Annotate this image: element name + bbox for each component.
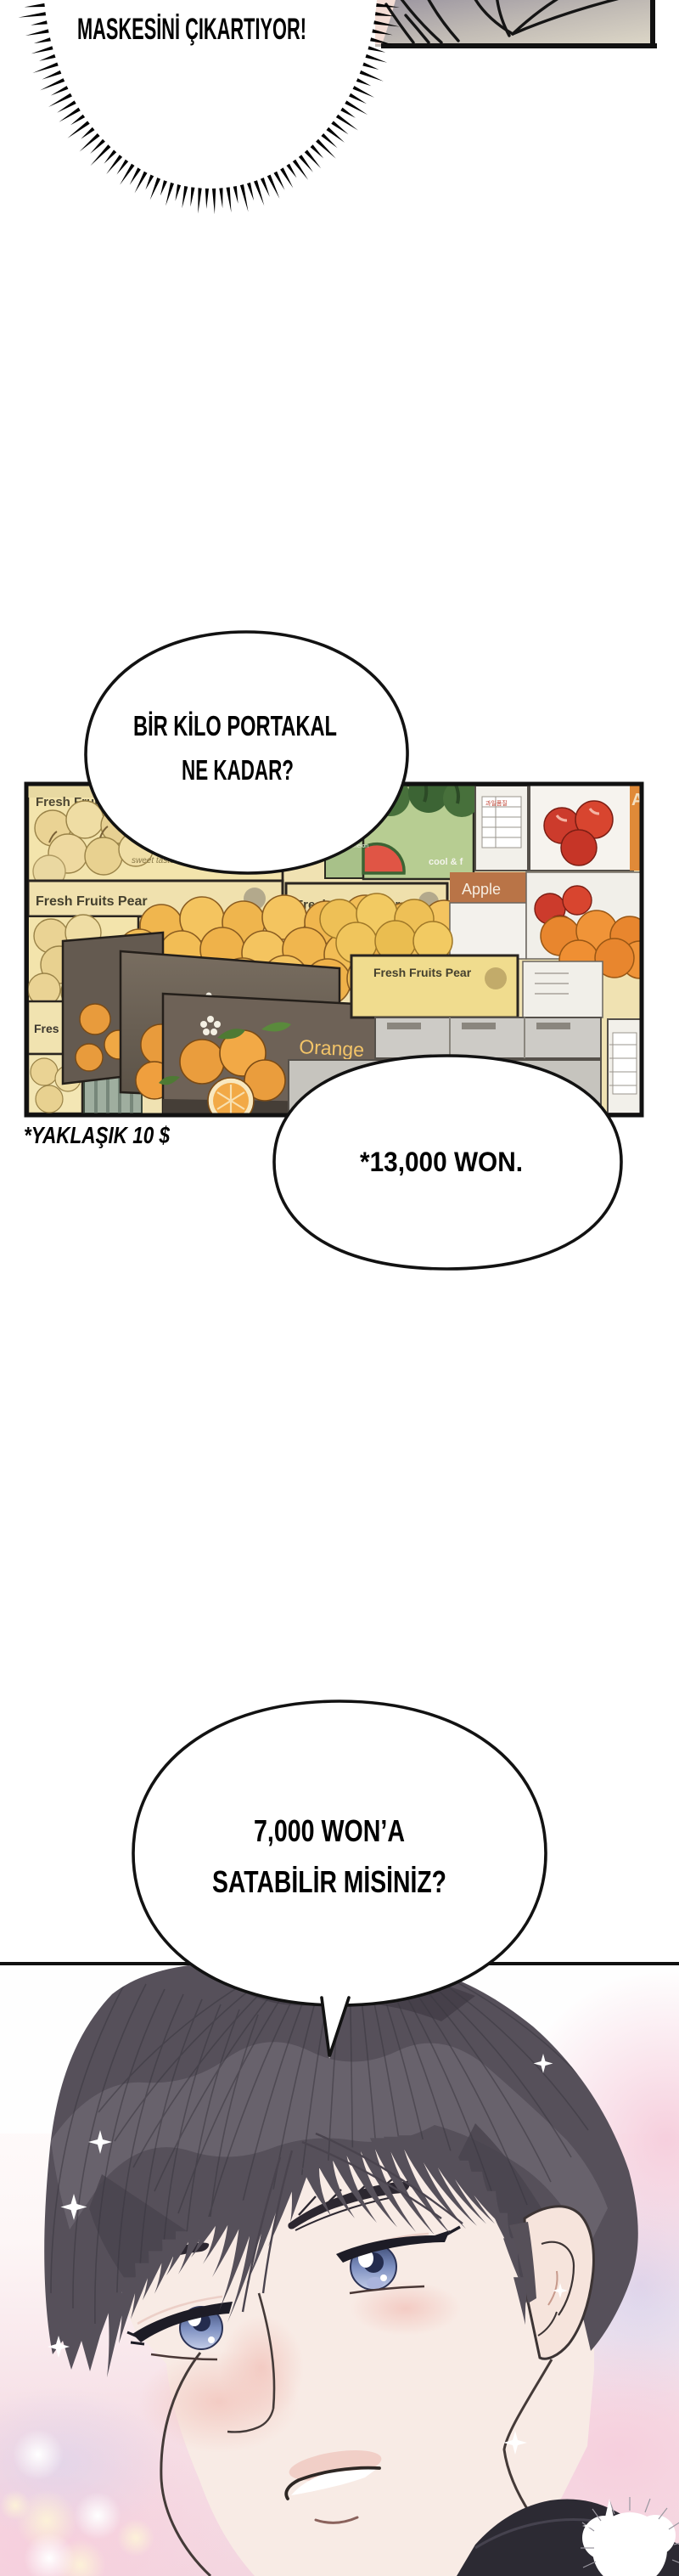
svg-text:Fresh Fruits Pear: Fresh Fruits Pear	[36, 894, 148, 909]
svg-text:과일품질: 과일품질	[485, 799, 508, 807]
svg-text:cool & f: cool & f	[429, 857, 463, 867]
svg-text:7,000 WON’A: 7,000 WON’A	[254, 1813, 405, 1848]
svg-text:*YAKLAŞIK 10 $: *YAKLAŞIK 10 $	[24, 1122, 170, 1148]
svg-text:Apple: Apple	[462, 881, 501, 898]
svg-text:MASKESİNİ ÇIKARTIYOR!: MASKESİNİ ÇIKARTIYOR!	[77, 13, 306, 46]
svg-text:NE KADAR?: NE KADAR?	[182, 754, 294, 786]
svg-text:SATABİLİR MİSİNİZ?: SATABİLİR MİSİNİZ?	[212, 1864, 446, 1899]
svg-text:Orange: Orange	[299, 1035, 365, 1061]
svg-text:Fres: Fres	[34, 1022, 59, 1035]
svg-text:BİR KİLO PORTAKAL: BİR KİLO PORTAKAL	[133, 710, 337, 741]
svg-text:*13,000 WON.: *13,000 WON.	[360, 1147, 523, 1177]
svg-text:Fresh Fruits Pear: Fresh Fruits Pear	[373, 966, 472, 979]
